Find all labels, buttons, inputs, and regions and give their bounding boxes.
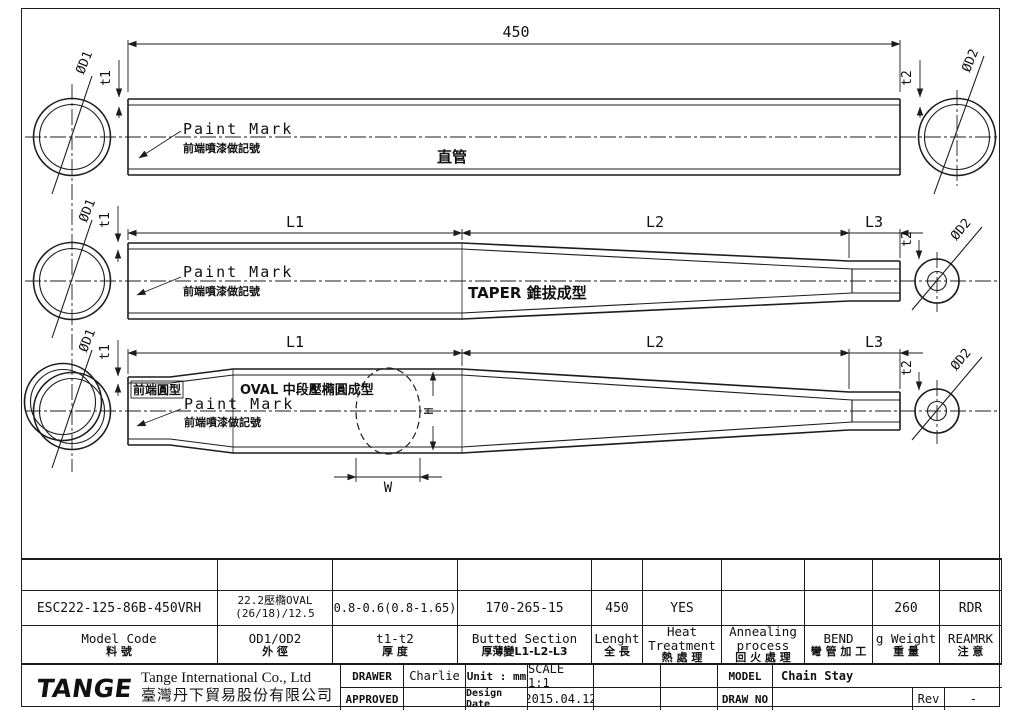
od2-label: ØD2 xyxy=(948,216,975,244)
od-value-line2: (26/18)/12.5 xyxy=(235,608,314,621)
straight-tube-type-label: 直管 xyxy=(437,148,467,166)
rev-label: Rev xyxy=(912,688,944,710)
spec-empty-cell xyxy=(592,560,643,591)
spec-header-weight: g Weight 重 量 xyxy=(873,626,940,665)
header-en: Model Code xyxy=(81,632,156,646)
spec-value-od: 22.2壓橢OVAL (26/18)/12.5 xyxy=(218,591,333,626)
spec-header-butted-section: Butted Section 厚薄變L1-L2-L3 xyxy=(458,626,592,665)
header-en: REAMRK xyxy=(948,632,993,646)
header-en: Lenght xyxy=(594,632,639,646)
header-en: Butted Section xyxy=(472,632,577,646)
spec-empty-cell xyxy=(940,560,1002,591)
title-block-empty-cell xyxy=(593,665,660,688)
spec-header-bend: BEND 彎 管 加 工 xyxy=(805,626,873,665)
spec-empty-cell xyxy=(873,560,940,591)
spec-header-model-code: Model Code 料 號 xyxy=(21,626,218,665)
oval-width-label: W xyxy=(384,480,393,496)
spec-header-length: Lenght 全 長 xyxy=(592,626,643,665)
dimension-lines xyxy=(118,206,923,295)
company-name-zh: 臺灣丹下貿易股份有限公司 xyxy=(141,688,333,705)
l1-label: L1 xyxy=(286,213,304,231)
spec-empty-cell xyxy=(805,560,873,591)
od1-label: ØD1 xyxy=(76,327,99,354)
header-en: Annealing process xyxy=(722,626,804,652)
t1-label: t1 xyxy=(99,70,114,86)
spec-header-remark: REAMRK 注 意 xyxy=(940,626,1002,665)
drawing-straight-tube xyxy=(34,40,996,194)
spec-value-heat-treatment: YES xyxy=(643,591,722,626)
taper-type-label: TAPER 錐拔成型 xyxy=(468,284,587,302)
company-cell: TANGE Tange International Co., Ltd 臺灣丹下貿… xyxy=(21,665,340,710)
t1-label: t1 xyxy=(98,212,113,228)
paint-mark-label: Paint Mark xyxy=(183,120,293,138)
spec-value-thickness: 0.8-0.6(0.8-1.65) xyxy=(333,591,458,626)
drawing-sheet: 450 t1 t2 ØD1 ØD2 Paint Mark 前端噴漆做記號 直管 xyxy=(0,0,1024,718)
od2-label: ØD2 xyxy=(948,346,975,374)
t2-label: t2 xyxy=(900,360,915,376)
header-zh: 重 量 xyxy=(893,646,919,658)
drawer-label: DRAWER xyxy=(340,665,403,688)
tange-logo-text: TANGE xyxy=(35,674,133,703)
paint-mark-label: Paint Mark xyxy=(184,395,294,413)
draw-no-label: DRAW NO xyxy=(717,688,772,710)
drawing-oval-labels: L1 L2 L3 t1 t2 ØD1 ØD2 前端圓型 OVAL 中段壓橢圓成型… xyxy=(76,327,974,496)
t1-label: t1 xyxy=(98,344,113,360)
header-zh: 厚 度 xyxy=(382,646,408,658)
spec-header-od: OD1/OD2 外 徑 xyxy=(218,626,333,665)
header-zh: 全 長 xyxy=(604,646,630,658)
header-zh: 料 號 xyxy=(106,646,132,658)
approved-value xyxy=(403,688,465,710)
spec-empty-cell xyxy=(218,560,333,591)
tange-logo: TANGE xyxy=(33,673,133,703)
spec-empty-cell xyxy=(643,560,722,591)
dim-450-label: 450 xyxy=(502,23,529,41)
t2-label: t2 xyxy=(900,70,915,86)
spec-value-remark: RDR xyxy=(940,591,1002,626)
company-name-en: Tange International Co., Ltd xyxy=(141,670,333,687)
scale-value: SCALE 1:1 xyxy=(527,665,593,688)
spec-empty-cell xyxy=(21,560,218,591)
title-block-empty-cell xyxy=(660,688,717,710)
header-en: Heat Treatment xyxy=(643,626,721,652)
rev-value: - xyxy=(944,688,1002,710)
header-en: BEND xyxy=(823,632,853,646)
paint-mark-zh-label: 前端噴漆做記號 xyxy=(183,284,260,298)
spec-value-weight: 260 xyxy=(873,591,940,626)
t2-label: t2 xyxy=(900,231,915,247)
approved-label: APPROVED xyxy=(340,688,403,710)
title-block: TANGE Tange International Co., Ltd 臺灣丹下貿… xyxy=(21,663,1002,708)
header-en: g Weight xyxy=(876,632,936,646)
front-round-zh-label: 前端圓型 xyxy=(133,382,181,397)
drawing-taper-tube xyxy=(34,206,983,338)
header-zh: 外 徑 xyxy=(262,646,288,658)
spec-value-butted-section: 170-265-15 xyxy=(458,591,592,626)
spec-header-annealing: Annealing process 回 火 處 理 xyxy=(722,626,805,665)
title-block-empty-cell xyxy=(593,688,660,710)
l3-label: L3 xyxy=(865,213,883,231)
l2-label: L2 xyxy=(646,333,664,351)
header-zh: 彎 管 加 工 xyxy=(811,646,867,658)
draw-no-value xyxy=(772,688,912,710)
paint-mark-zh-label: 前端噴漆做記號 xyxy=(183,141,260,155)
spec-empty-cell xyxy=(458,560,592,591)
spec-value-length: 450 xyxy=(592,591,643,626)
paint-mark-zh-label: 前端噴漆做記號 xyxy=(184,415,261,429)
design-date-value: 2015.04.12 xyxy=(527,688,593,710)
paint-mark-label: Paint Mark xyxy=(183,263,293,281)
l3-label: L3 xyxy=(865,333,883,351)
oval-height-label: H xyxy=(422,407,436,414)
spec-value-bend xyxy=(805,591,873,626)
l1-label: L1 xyxy=(286,333,304,351)
od1-label: ØD1 xyxy=(73,49,96,76)
model-label: MODEL xyxy=(717,665,772,688)
header-zh: 厚薄變L1-L2-L3 xyxy=(481,646,567,658)
spec-header-thickness: t1-t2 厚 度 xyxy=(333,626,458,665)
spec-empty-cell xyxy=(722,560,805,591)
od1-label: ØD1 xyxy=(76,197,99,224)
spec-header-heat-treatment: Heat Treatment 熱 處 理 xyxy=(643,626,722,665)
drawer-value: Charlie xyxy=(403,665,465,688)
title-block-empty-cell xyxy=(660,665,717,688)
unit-label: Unit : mm xyxy=(465,665,527,688)
spec-value-model-code: ESC222-125-86B-450VRH xyxy=(21,591,218,626)
spec-table: ESC222-125-86B-450VRH 22.2壓橢OVAL (26/18)… xyxy=(21,558,1002,663)
header-en: OD1/OD2 xyxy=(249,632,302,646)
company-name: Tange International Co., Ltd 臺灣丹下貿易股份有限公… xyxy=(141,670,333,705)
model-value: Chain Stay xyxy=(772,665,1002,688)
design-date-label: Design Date xyxy=(465,688,527,710)
spec-value-annealing xyxy=(722,591,805,626)
header-zh: 注 意 xyxy=(958,646,984,658)
spec-empty-cell xyxy=(333,560,458,591)
centerlines xyxy=(25,84,1000,472)
l2-label: L2 xyxy=(646,213,664,231)
header-en: t1-t2 xyxy=(376,632,414,646)
